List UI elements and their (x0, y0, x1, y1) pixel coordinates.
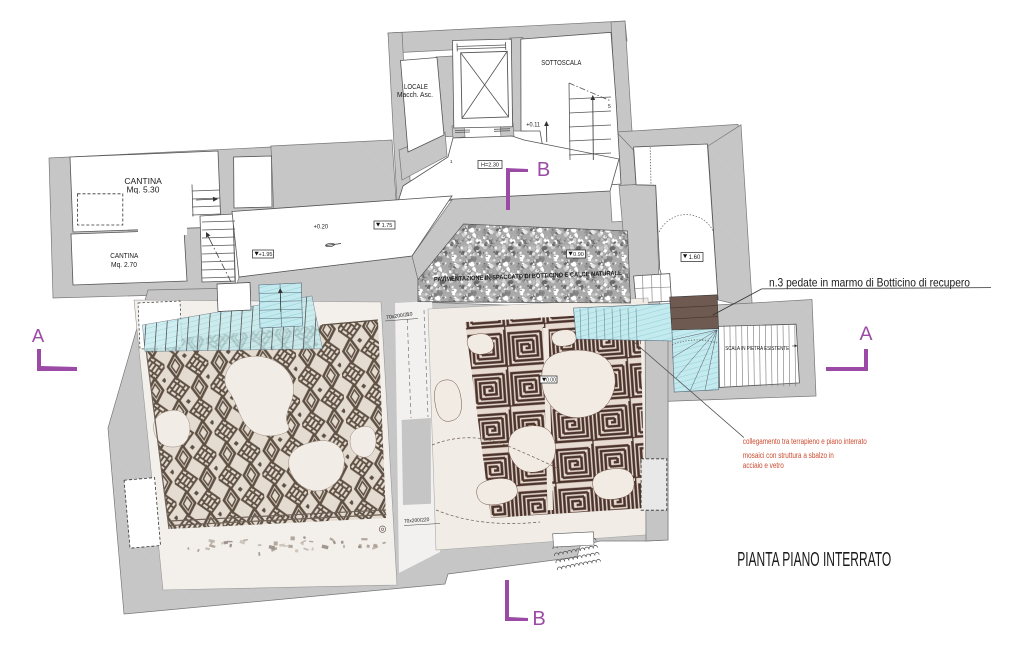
svg-text:+0.20: +0.20 (314, 224, 329, 230)
svg-text:Mq. 2.70: Mq. 2.70 (111, 262, 137, 269)
svg-text:1.75: 1.75 (382, 223, 393, 229)
svg-text:H=2.30: H=2.30 (481, 163, 499, 169)
svg-text:CANTINA: CANTINA (110, 253, 138, 260)
svg-text:SCALA IN PIETRA ESISTENTE: SCALA IN PIETRA ESISTENTE (725, 346, 790, 352)
svg-text:SOTTOSCALA: SOTTOSCALA (541, 58, 581, 67)
svg-text:A: A (32, 325, 45, 346)
svg-text:Mq. 5.30: Mq. 5.30 (127, 186, 161, 195)
svg-text:PIANTA PIANO INTERRATO: PIANTA PIANO INTERRATO (737, 549, 891, 571)
svg-text:1.60: 1.60 (689, 255, 701, 261)
svg-text:n.3 pedate in marmo di Bottici: n.3 pedate in marmo di Botticino di recu… (769, 276, 970, 290)
svg-text:mosaici con struttura a sbalzo: mosaici con struttura a sbalzo in (743, 451, 834, 460)
svg-text:+1.95: +1.95 (259, 252, 273, 258)
svg-text:B: B (532, 608, 545, 630)
svg-text:Macch. Asc.: Macch. Asc. (397, 90, 433, 99)
svg-text:+0.11: +0.11 (526, 123, 540, 129)
svg-text:acciaio e vetro: acciaio e vetro (743, 461, 784, 470)
svg-text:B: B (537, 159, 550, 181)
svg-text:5: 5 (608, 104, 611, 110)
svg-text:collegamento tra terrapieno e: collegamento tra terrapieno e piano inte… (743, 437, 867, 446)
svg-text:0.90: 0.90 (573, 252, 584, 258)
svg-text:0.00: 0.00 (546, 377, 556, 383)
svg-text:A: A (859, 323, 872, 345)
